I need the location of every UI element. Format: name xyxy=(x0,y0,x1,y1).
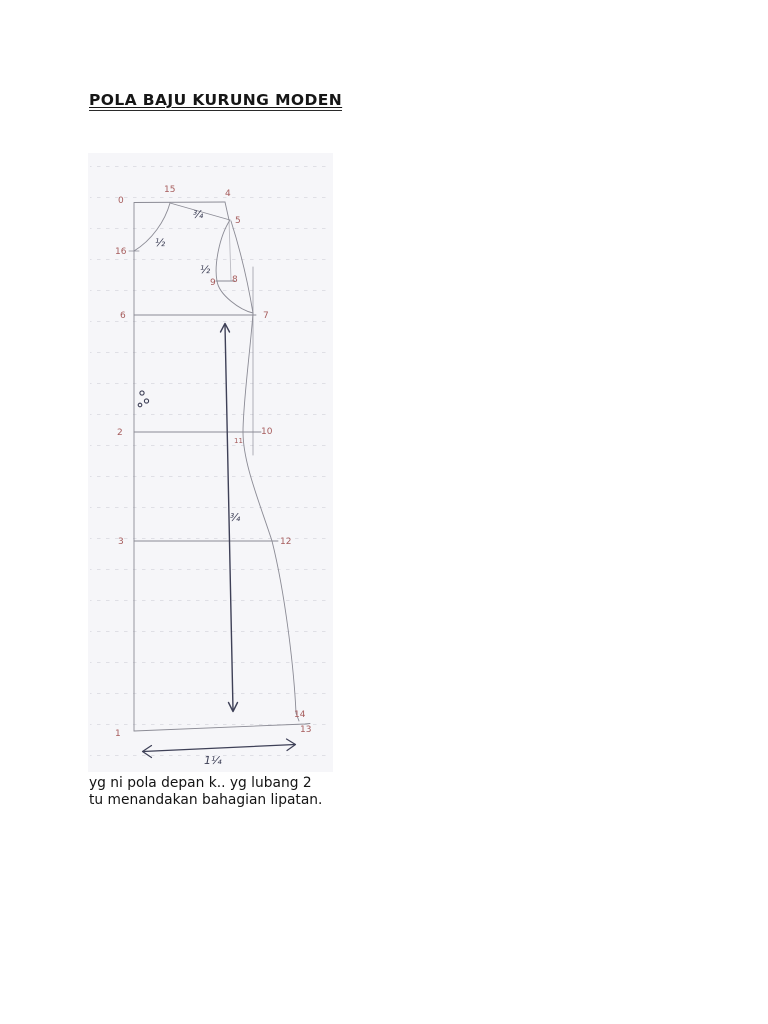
point-label-16: 16 xyxy=(115,247,127,257)
point-label-6: 6 xyxy=(120,311,126,321)
page-title-text: POLA BAJU KURUNG MODEN xyxy=(89,91,342,111)
shoulder-measure-label: ¾ xyxy=(193,209,204,221)
page-title: POLA BAJU KURUNG MODEN xyxy=(89,91,342,111)
point-label-4: 4 xyxy=(225,189,231,199)
point-label-1: 1 xyxy=(115,729,121,739)
point-label-12: 12 xyxy=(280,537,291,547)
grain-measure-label: ¾ xyxy=(230,512,241,524)
point-label-3: 3 xyxy=(118,537,124,547)
neck-measure-label: ½ xyxy=(155,237,165,249)
top-line xyxy=(134,202,225,203)
dotted-guide-rows xyxy=(90,153,331,765)
point-label-14: 14 xyxy=(294,710,306,720)
point-label-5: 5 xyxy=(235,216,241,226)
caption-line-2: tu menandakan bahagian lipatan. xyxy=(89,792,322,809)
point-label-2: 2 xyxy=(117,428,123,438)
point-label-10: 10 xyxy=(261,427,273,437)
pattern-scan-image: 0 15 4 5 16 9 8 6 7 2 11 10 3 12 1 14 13… xyxy=(88,153,333,772)
caption: yg ni pola depan k.. yg lubang 2 tu mena… xyxy=(89,775,322,809)
point-label-9: 9 xyxy=(210,278,216,288)
armhole-measure-label: ½ xyxy=(200,264,210,276)
point-label-0: 0 xyxy=(118,196,124,206)
point-label-13: 13 xyxy=(300,725,311,735)
document-page: POLA BAJU KURUNG MODEN xyxy=(0,0,768,1024)
caption-line-1: yg ni pola depan k.. yg lubang 2 xyxy=(89,775,322,792)
point-label-7: 7 xyxy=(263,311,269,321)
hem-width-measure-label: 1¼ xyxy=(204,754,222,767)
point-label-8: 8 xyxy=(232,275,238,285)
point-label-11: 11 xyxy=(234,437,243,445)
pattern-diagram: 0 15 4 5 16 9 8 6 7 2 11 10 3 12 1 14 13… xyxy=(88,153,333,772)
point-label-15: 15 xyxy=(164,185,175,195)
